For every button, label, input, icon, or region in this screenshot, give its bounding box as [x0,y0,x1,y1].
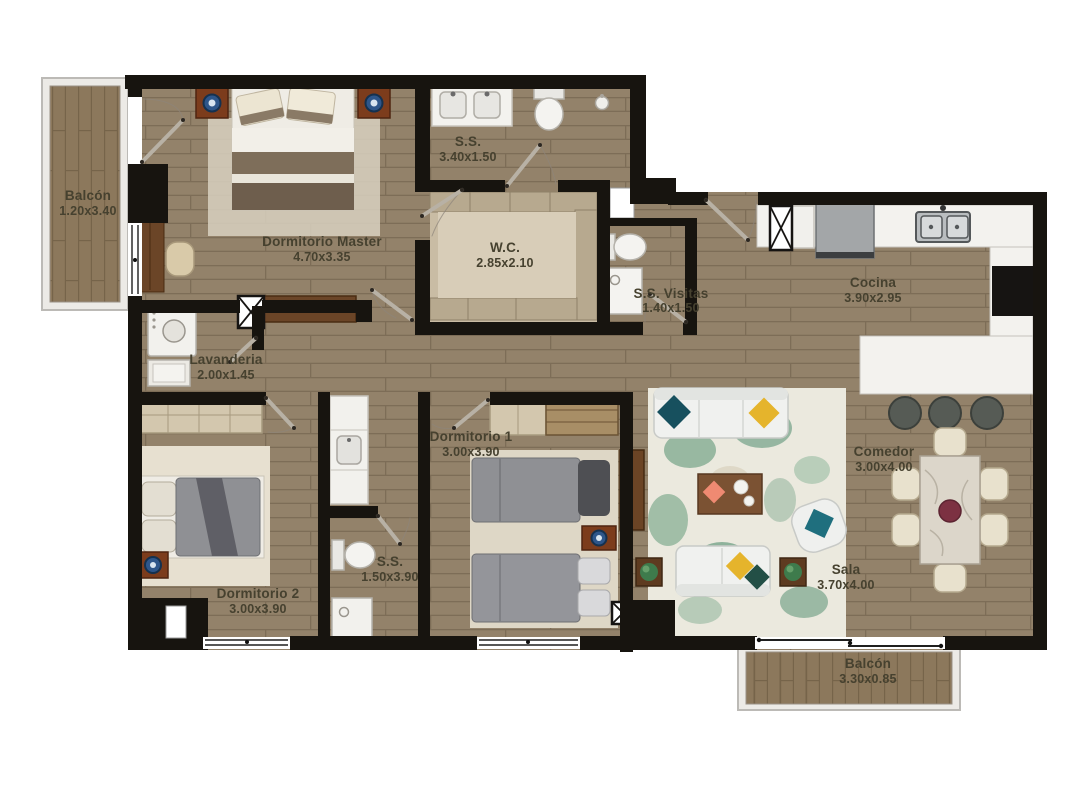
wall-niche [166,606,186,638]
bar-stools [889,397,1003,429]
kitchen-island [860,336,1033,394]
room-label-comedor: Comedor [854,444,915,459]
shower [332,598,372,640]
window [128,223,142,296]
shaft-icon [770,206,792,250]
dorm1-bed [472,458,610,522]
room-dims-wc: 2.85x2.10 [476,256,533,270]
double-sink-vanity [432,86,512,126]
room-label-balcon-inferior: Balcón [845,656,891,671]
room-dims-dormitorio-master: 4.70x3.35 [293,250,350,264]
dorm2-bed [140,476,264,558]
room-dims-comedor: 3.00x4.00 [855,460,912,474]
master-bed [232,86,354,210]
washer [148,306,196,356]
toilet [604,234,646,260]
dining-table [920,456,980,564]
built-in-oven [992,266,1033,316]
room-dims-ss-visitas: 1.40x1.50 [642,301,699,315]
window [203,637,290,649]
nightstand [138,552,168,578]
sofa [676,546,770,596]
floor-plan-canvas: Balcón 1.20x3.40 Dormitorio Master 4.70x… [0,0,1090,800]
side-table-plant [636,558,662,586]
room-dims-cocina: 3.90x2.95 [844,291,901,305]
room-dims-dormitorio-1: 3.00x3.90 [442,445,499,459]
window [477,637,580,649]
room-label-balcon-superior: Balcón [65,188,111,203]
dishwasher [792,206,814,248]
toilet [332,540,375,570]
room-label-ss-medio: S.S. [377,554,403,569]
nightstand [582,526,616,550]
laundry-sink [148,360,190,386]
desk-chair [166,242,194,276]
side-table-plant [780,558,806,586]
room-label-ss-visitas: S.S. Visitas [634,286,709,301]
sofa [654,388,788,438]
fridge [816,204,874,258]
room-dims-ss-master: 3.40x1.50 [439,150,496,164]
sliding-door [755,637,945,649]
room-label-dormitorio-1: Dormitorio 1 [430,429,513,444]
room-dims-sala: 3.70x4.00 [817,578,874,592]
room-label-wc: W.C. [490,240,520,255]
nightstand [358,88,390,118]
room-dims-dormitorio-2: 3.00x3.90 [229,602,286,616]
room-dims-balcon-superior: 1.20x3.40 [59,204,116,218]
room-label-dormitorio-2: Dormitorio 2 [217,586,300,601]
bath-vanity [330,396,368,504]
room-label-lavanderia: Lavanderia [189,352,263,367]
coffee-table [698,474,762,514]
room-label-sala: Sala [832,562,861,577]
room-dims-balcon-inferior: 3.30x0.85 [839,672,896,686]
room-label-ss-master: S.S. [455,134,481,149]
room-dims-lavanderia: 2.00x1.45 [197,368,254,382]
room-dims-ss-medio: 1.50x3.90 [361,570,418,584]
nightstand [196,88,228,118]
room-label-dormitorio-master: Dormitorio Master [262,234,382,249]
balcony-door-opening [128,97,142,164]
room-label-cocina: Cocina [850,275,897,290]
toilet [534,86,564,130]
floor-plan-page: Balcón 1.20x3.40 Dormitorio Master 4.70x… [0,0,1090,800]
